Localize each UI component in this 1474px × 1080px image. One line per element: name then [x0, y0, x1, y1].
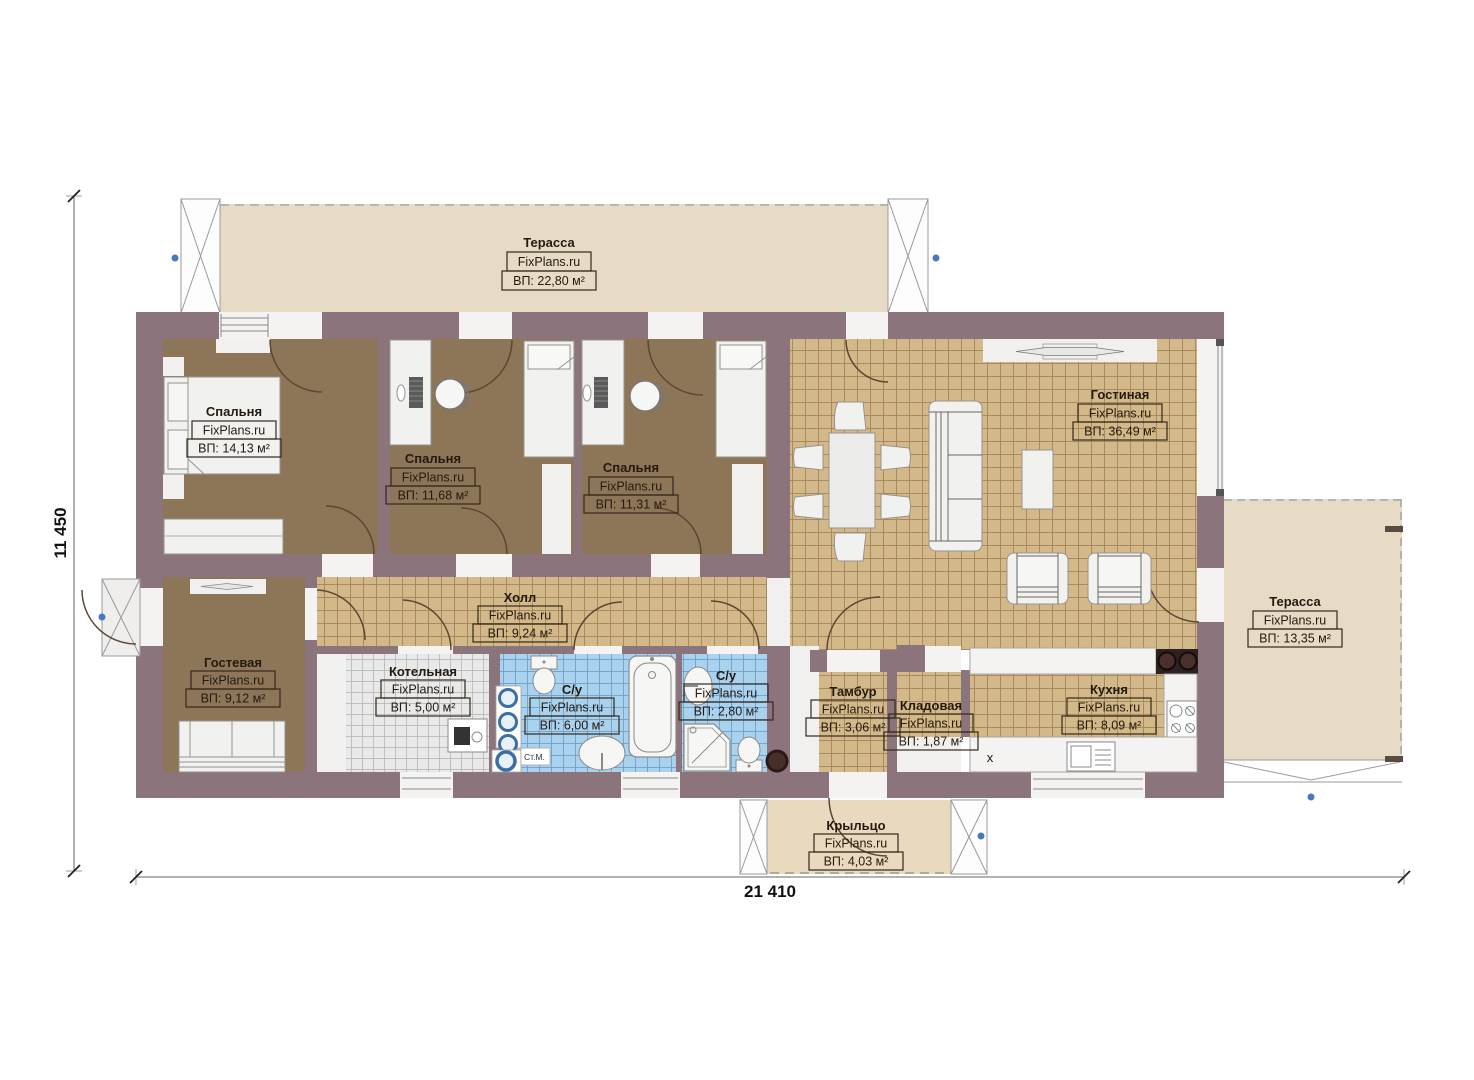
svg-text:Спальня: Спальня	[405, 451, 461, 466]
svg-text:Терасса: Терасса	[1269, 594, 1321, 609]
svg-text:FixPlans.ru: FixPlans.ru	[600, 480, 663, 494]
svg-text:Гостиная: Гостиная	[1091, 387, 1150, 402]
svg-text:С/у: С/у	[716, 668, 737, 683]
svg-text:ВП: 9,24 м²: ВП: 9,24 м²	[488, 627, 553, 641]
svg-text:ВП: 11,68 м²: ВП: 11,68 м²	[398, 489, 469, 503]
svg-text:FixPlans.ru: FixPlans.ru	[1264, 614, 1327, 628]
svg-text:FixPlans.ru: FixPlans.ru	[822, 703, 885, 717]
svg-text:FixPlans.ru: FixPlans.ru	[392, 683, 455, 697]
svg-text:Спальня: Спальня	[603, 460, 659, 475]
svg-text:С/у: С/у	[562, 682, 583, 697]
svg-text:FixPlans.ru: FixPlans.ru	[203, 424, 266, 438]
svg-text:ВП: 13,35 м²: ВП: 13,35 м²	[1259, 632, 1331, 646]
svg-text:ВП: 5,00 м²: ВП: 5,00 м²	[391, 701, 456, 715]
svg-text:ВП: 14,13 м²: ВП: 14,13 м²	[198, 442, 270, 456]
svg-text:Кухня: Кухня	[1090, 682, 1128, 697]
svg-text:ВП: 6,00 м²: ВП: 6,00 м²	[540, 719, 605, 733]
svg-text:ВП: 3,06 м²: ВП: 3,06 м²	[821, 721, 886, 735]
svg-text:ВП: 2,80 м²: ВП: 2,80 м²	[694, 705, 759, 719]
svg-text:ВП: 9,12 м²: ВП: 9,12 м²	[201, 692, 266, 706]
svg-text:Терасса: Терасса	[523, 235, 575, 250]
svg-text:FixPlans.ru: FixPlans.ru	[1089, 407, 1152, 421]
svg-text:FixPlans.ru: FixPlans.ru	[900, 717, 963, 731]
svg-text:11 450: 11 450	[51, 507, 70, 558]
svg-text:FixPlans.ru: FixPlans.ru	[518, 255, 581, 269]
svg-text:Ст.М.: Ст.М.	[524, 752, 545, 762]
svg-text:FixPlans.ru: FixPlans.ru	[402, 471, 465, 485]
svg-text:x: x	[987, 750, 994, 765]
svg-text:Гостевая: Гостевая	[204, 655, 262, 670]
svg-text:ВП: 4,03 м²: ВП: 4,03 м²	[824, 855, 889, 869]
svg-text:21 410: 21 410	[744, 882, 796, 901]
svg-text:ВП: 22,80 м²: ВП: 22,80 м²	[513, 274, 585, 288]
svg-text:Холл: Холл	[504, 590, 537, 605]
svg-text:ВП: 8,09 м²: ВП: 8,09 м²	[1077, 719, 1142, 733]
svg-text:Кладовая: Кладовая	[900, 698, 962, 713]
svg-text:ВП: 1,87 м²: ВП: 1,87 м²	[899, 735, 964, 749]
svg-text:FixPlans.ru: FixPlans.ru	[825, 837, 888, 851]
svg-text:FixPlans.ru: FixPlans.ru	[541, 701, 604, 715]
svg-text:FixPlans.ru: FixPlans.ru	[489, 609, 552, 623]
svg-text:Котельная: Котельная	[389, 664, 457, 679]
svg-text:FixPlans.ru: FixPlans.ru	[695, 687, 758, 701]
svg-text:ВП: 36,49 м²: ВП: 36,49 м²	[1084, 425, 1156, 439]
svg-text:Крыльцо: Крыльцо	[826, 818, 885, 833]
svg-text:FixPlans.ru: FixPlans.ru	[202, 674, 265, 688]
svg-text:Спальня: Спальня	[206, 404, 262, 419]
svg-text:FixPlans.ru: FixPlans.ru	[1078, 701, 1141, 715]
svg-text:ВП: 11,31 м²: ВП: 11,31 м²	[596, 498, 667, 512]
svg-text:Тамбур: Тамбур	[829, 684, 876, 699]
